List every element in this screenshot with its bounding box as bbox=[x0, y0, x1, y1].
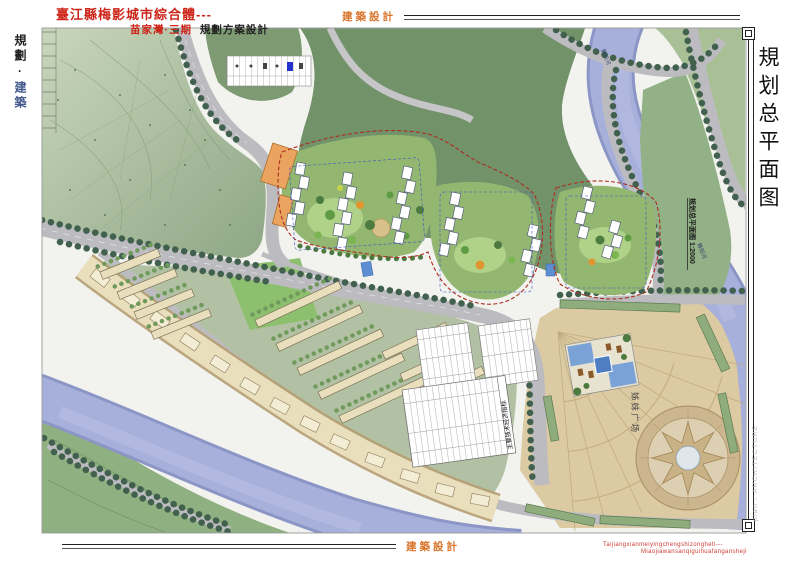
pinyin-line-2: Miaojiawansanqiguihuafangansheji bbox=[641, 549, 747, 555]
courtyard-plaza-circle bbox=[372, 219, 390, 237]
double-rule-bottom bbox=[62, 544, 396, 549]
left-label-architecture: 建築 bbox=[13, 81, 27, 111]
double-rule-top bbox=[404, 15, 740, 20]
left-label-dot: · bbox=[13, 64, 27, 81]
main-indicator-table: 主要技术经济指标 bbox=[402, 376, 516, 468]
pool-feature bbox=[546, 264, 555, 276]
stamp-architecture-bottom: 建築設計 bbox=[406, 539, 460, 554]
plaza-water-feature bbox=[565, 334, 639, 397]
scale-caption-group: 规划总平面图 1:2000 bbox=[688, 198, 698, 270]
pool-feature bbox=[361, 261, 373, 277]
legend-strip bbox=[227, 56, 311, 86]
scale-caption: 规划总平面图 1:2000 bbox=[688, 198, 697, 264]
plaza-label: 姊妹广场 bbox=[630, 392, 640, 434]
master-plan-drawing: 主要技术经济指标 舞阳河 舞阳河 规划总平面图 1:2000 姊妹广场 bbox=[0, 0, 800, 565]
project-subtitle: 苗家灣·三期 規劃方案設計 bbox=[130, 22, 269, 37]
presentation-board: 主要技术经济指标 舞阳河 舞阳河 规划总平面图 1:2000 姊妹广场 bbox=[0, 0, 800, 565]
pinyin-line-1: Taijiangxianmeiyingchengshizongheti--- bbox=[603, 542, 723, 548]
subtitle-design-type: 規劃方案設計 bbox=[200, 24, 269, 36]
stamp-architecture-top: 建築設計 bbox=[342, 9, 396, 24]
subtitle-project-name: 苗家灣·三期 bbox=[130, 24, 192, 36]
left-label-planning: 規劃 bbox=[13, 34, 27, 64]
drawing-title-vertical: 規划总平面图 bbox=[753, 46, 783, 214]
project-title: 臺江縣梅影城市綜合體--- bbox=[56, 4, 212, 23]
legend-blue-symbol bbox=[287, 62, 293, 71]
left-vertical-label: 規劃·建築 bbox=[12, 34, 29, 111]
side-note-vertical: plan / ARCHITECTURE bbox=[752, 424, 759, 521]
